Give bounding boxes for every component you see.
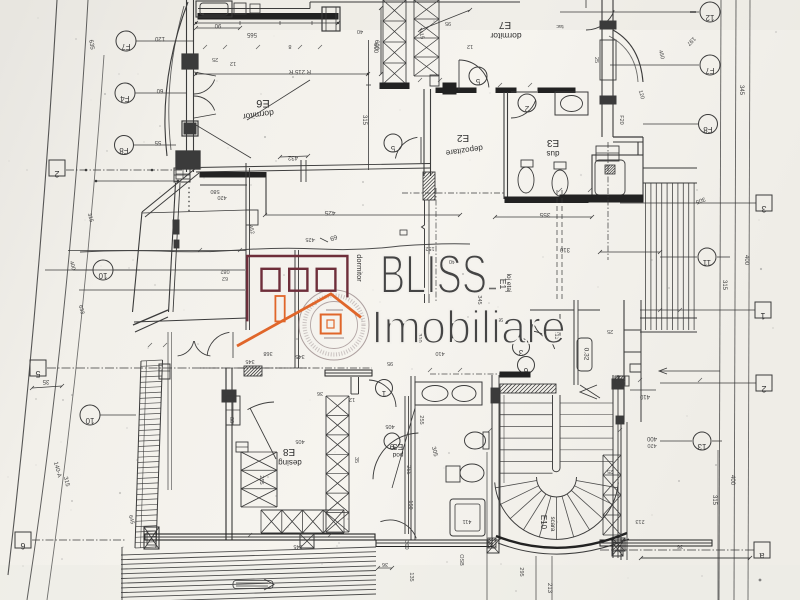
svg-text:E7: E7: [498, 19, 511, 30]
svg-text:315: 315: [711, 495, 717, 506]
svg-text:420: 420: [217, 194, 226, 200]
svg-text:3: 3: [761, 204, 766, 214]
svg-text:1: 1: [760, 311, 765, 321]
svg-text:35: 35: [42, 378, 49, 384]
svg-text:R 215 R: R 215 R: [288, 68, 311, 74]
svg-text:36: 36: [382, 561, 388, 567]
svg-text:405: 405: [295, 438, 304, 444]
svg-text:loj etaj: loj etaj: [505, 274, 512, 293]
svg-text:F8: F8: [703, 125, 713, 134]
svg-text:420: 420: [647, 442, 656, 448]
svg-text:95: 95: [387, 360, 393, 366]
svg-text:35: 35: [353, 457, 359, 463]
svg-text:F4: F4: [120, 94, 130, 103]
svg-text:345: 345: [295, 353, 304, 359]
svg-text:36: 36: [317, 390, 323, 396]
svg-text:6: 6: [20, 541, 25, 551]
svg-text:300: 300: [403, 540, 409, 549]
svg-text:345: 345: [293, 543, 302, 549]
svg-text:213: 213: [635, 518, 644, 524]
svg-text:F7: F7: [705, 66, 715, 75]
svg-text:411: 411: [463, 518, 472, 524]
svg-text:a: a: [759, 551, 764, 561]
svg-text:dormitor: dormitor: [490, 31, 521, 41]
svg-text:255: 255: [405, 465, 411, 474]
svg-text:BLISS: BLISS: [380, 243, 487, 305]
svg-text:25: 25: [607, 328, 613, 334]
svg-text:565: 565: [246, 31, 257, 37]
svg-text:E8: E8: [282, 446, 295, 457]
svg-text:desing: desing: [278, 458, 302, 467]
svg-text:5: 5: [475, 77, 480, 86]
svg-text:315: 315: [721, 280, 727, 291]
svg-text:10: 10: [98, 271, 107, 280]
svg-text:36: 36: [677, 543, 683, 549]
svg-text:345: 345: [738, 85, 744, 96]
svg-text:135: 135: [408, 572, 414, 581]
svg-text:12: 12: [467, 43, 473, 49]
svg-text:150: 150: [407, 500, 413, 509]
svg-text:OSB: OSB: [458, 554, 464, 566]
svg-text:255: 255: [418, 415, 424, 424]
svg-text:12: 12: [705, 13, 714, 22]
svg-text:tac: tac: [556, 23, 564, 29]
svg-text:55: 55: [154, 139, 161, 145]
svg-text:25: 25: [607, 468, 613, 474]
svg-text:213: 213: [546, 583, 552, 594]
svg-text:580: 580: [210, 188, 219, 194]
svg-text:E3: E3: [546, 137, 559, 148]
svg-text:scara: scara: [549, 517, 555, 532]
svg-text:082: 082: [220, 268, 229, 274]
svg-text:F8: F8: [119, 146, 129, 155]
svg-text:11: 11: [702, 258, 711, 267]
svg-text:F7: F7: [121, 42, 131, 51]
svg-text:310: 310: [559, 246, 570, 252]
svg-text:295: 295: [518, 567, 524, 576]
svg-text:355: 355: [539, 211, 550, 218]
svg-text:400: 400: [743, 255, 749, 266]
svg-text:12: 12: [349, 396, 355, 402]
svg-text:425: 425: [305, 236, 314, 242]
svg-text:5: 5: [35, 369, 40, 379]
svg-text:13: 13: [697, 442, 706, 451]
svg-text:8: 8: [288, 43, 291, 49]
svg-text:E10: E10: [539, 515, 548, 530]
svg-text:1: 1: [381, 389, 386, 398]
svg-text:62: 62: [222, 275, 228, 281]
svg-text:dormitor: dormitor: [355, 254, 364, 282]
svg-text:25: 25: [593, 57, 599, 63]
svg-text:600: 600: [372, 43, 378, 54]
svg-text:315: 315: [361, 115, 367, 126]
svg-text:25: 25: [212, 56, 218, 62]
svg-text:2: 2: [54, 169, 59, 179]
svg-text:425: 425: [324, 209, 335, 216]
svg-text:12: 12: [230, 60, 236, 66]
svg-text:F20: F20: [618, 115, 624, 124]
svg-text:dus: dus: [547, 149, 560, 158]
svg-text:Imobiliare: Imobiliare: [371, 301, 566, 353]
svg-text:40: 40: [357, 28, 363, 34]
svg-text:2: 2: [524, 104, 529, 113]
svg-text:2: 2: [761, 384, 766, 394]
svg-text:400: 400: [646, 435, 657, 441]
svg-text:368: 368: [263, 350, 272, 356]
svg-text:E3: E3: [393, 442, 404, 452]
svg-text:255: 255: [258, 475, 264, 484]
svg-text:405: 405: [385, 423, 394, 429]
svg-text:400: 400: [729, 475, 735, 486]
svg-text:E2: E2: [456, 132, 469, 143]
svg-text:88: 88: [228, 417, 234, 423]
svg-text:0.32: 0.32: [583, 348, 590, 361]
svg-text:95: 95: [445, 20, 451, 26]
svg-text:5: 5: [390, 144, 395, 153]
svg-text:120: 120: [154, 35, 165, 41]
svg-text:10: 10: [85, 416, 94, 425]
svg-text:345: 345: [245, 358, 254, 364]
svg-text:60: 60: [156, 87, 163, 93]
